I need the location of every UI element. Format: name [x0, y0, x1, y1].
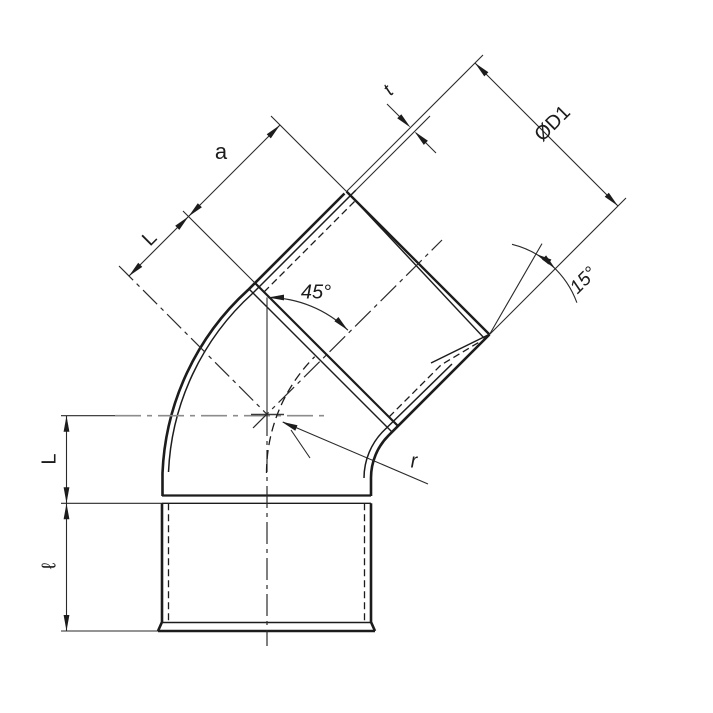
- d1-extension-upper: [347, 55, 484, 192]
- arrow-left-mid-down: [64, 487, 70, 503]
- angle-label-45: 45°: [301, 282, 331, 305]
- dim-label-L-left: L: [39, 453, 62, 464]
- arrow-r-leader: [282, 422, 298, 431]
- upper-socket-hidden-tube-left: [264, 201, 356, 293]
- radius-leader-line: [283, 422, 428, 484]
- shoulder-extension-line: [183, 211, 255, 283]
- dim-label-a: a: [215, 139, 227, 165]
- face-extension-line: [271, 116, 347, 192]
- dim-line-a-L: [129, 125, 280, 276]
- d1-extension-lower: [490, 198, 627, 335]
- bottom-left-wall: [158, 503, 162, 631]
- dim-label-radius-r: r: [411, 451, 418, 474]
- angle-15-arc: [512, 244, 577, 302]
- bottom-right-wall: [371, 503, 375, 631]
- arrow-left-mid-up: [64, 503, 70, 519]
- technical-drawing-canvas: a L L ℓ 45° 15° ØD1 t r: [0, 0, 713, 713]
- dim-label-ell: ℓ: [39, 563, 62, 569]
- t-extension-inner: [356, 116, 430, 190]
- leader-tick-line: [291, 430, 310, 458]
- inner-wall-inner-line: [364, 364, 452, 478]
- outer-wall-inner-line: [169, 190, 357, 472]
- upper-mouth-inner-face: [351, 196, 485, 339]
- arrowheads: [64, 63, 618, 631]
- arrow-left-bottom: [64, 615, 70, 631]
- elbow-fitting-drawing: [0, 0, 713, 713]
- diagonal-axis-centerline: [253, 240, 442, 428]
- flare-angle-ray: [490, 244, 543, 335]
- arrow-45-right: [334, 317, 348, 330]
- center-extension-dashdot: [119, 266, 267, 414]
- arrow-left-top: [64, 416, 70, 432]
- flare-edge-line: [431, 335, 488, 363]
- upper-socket-hidden-tube-right: [389, 341, 481, 417]
